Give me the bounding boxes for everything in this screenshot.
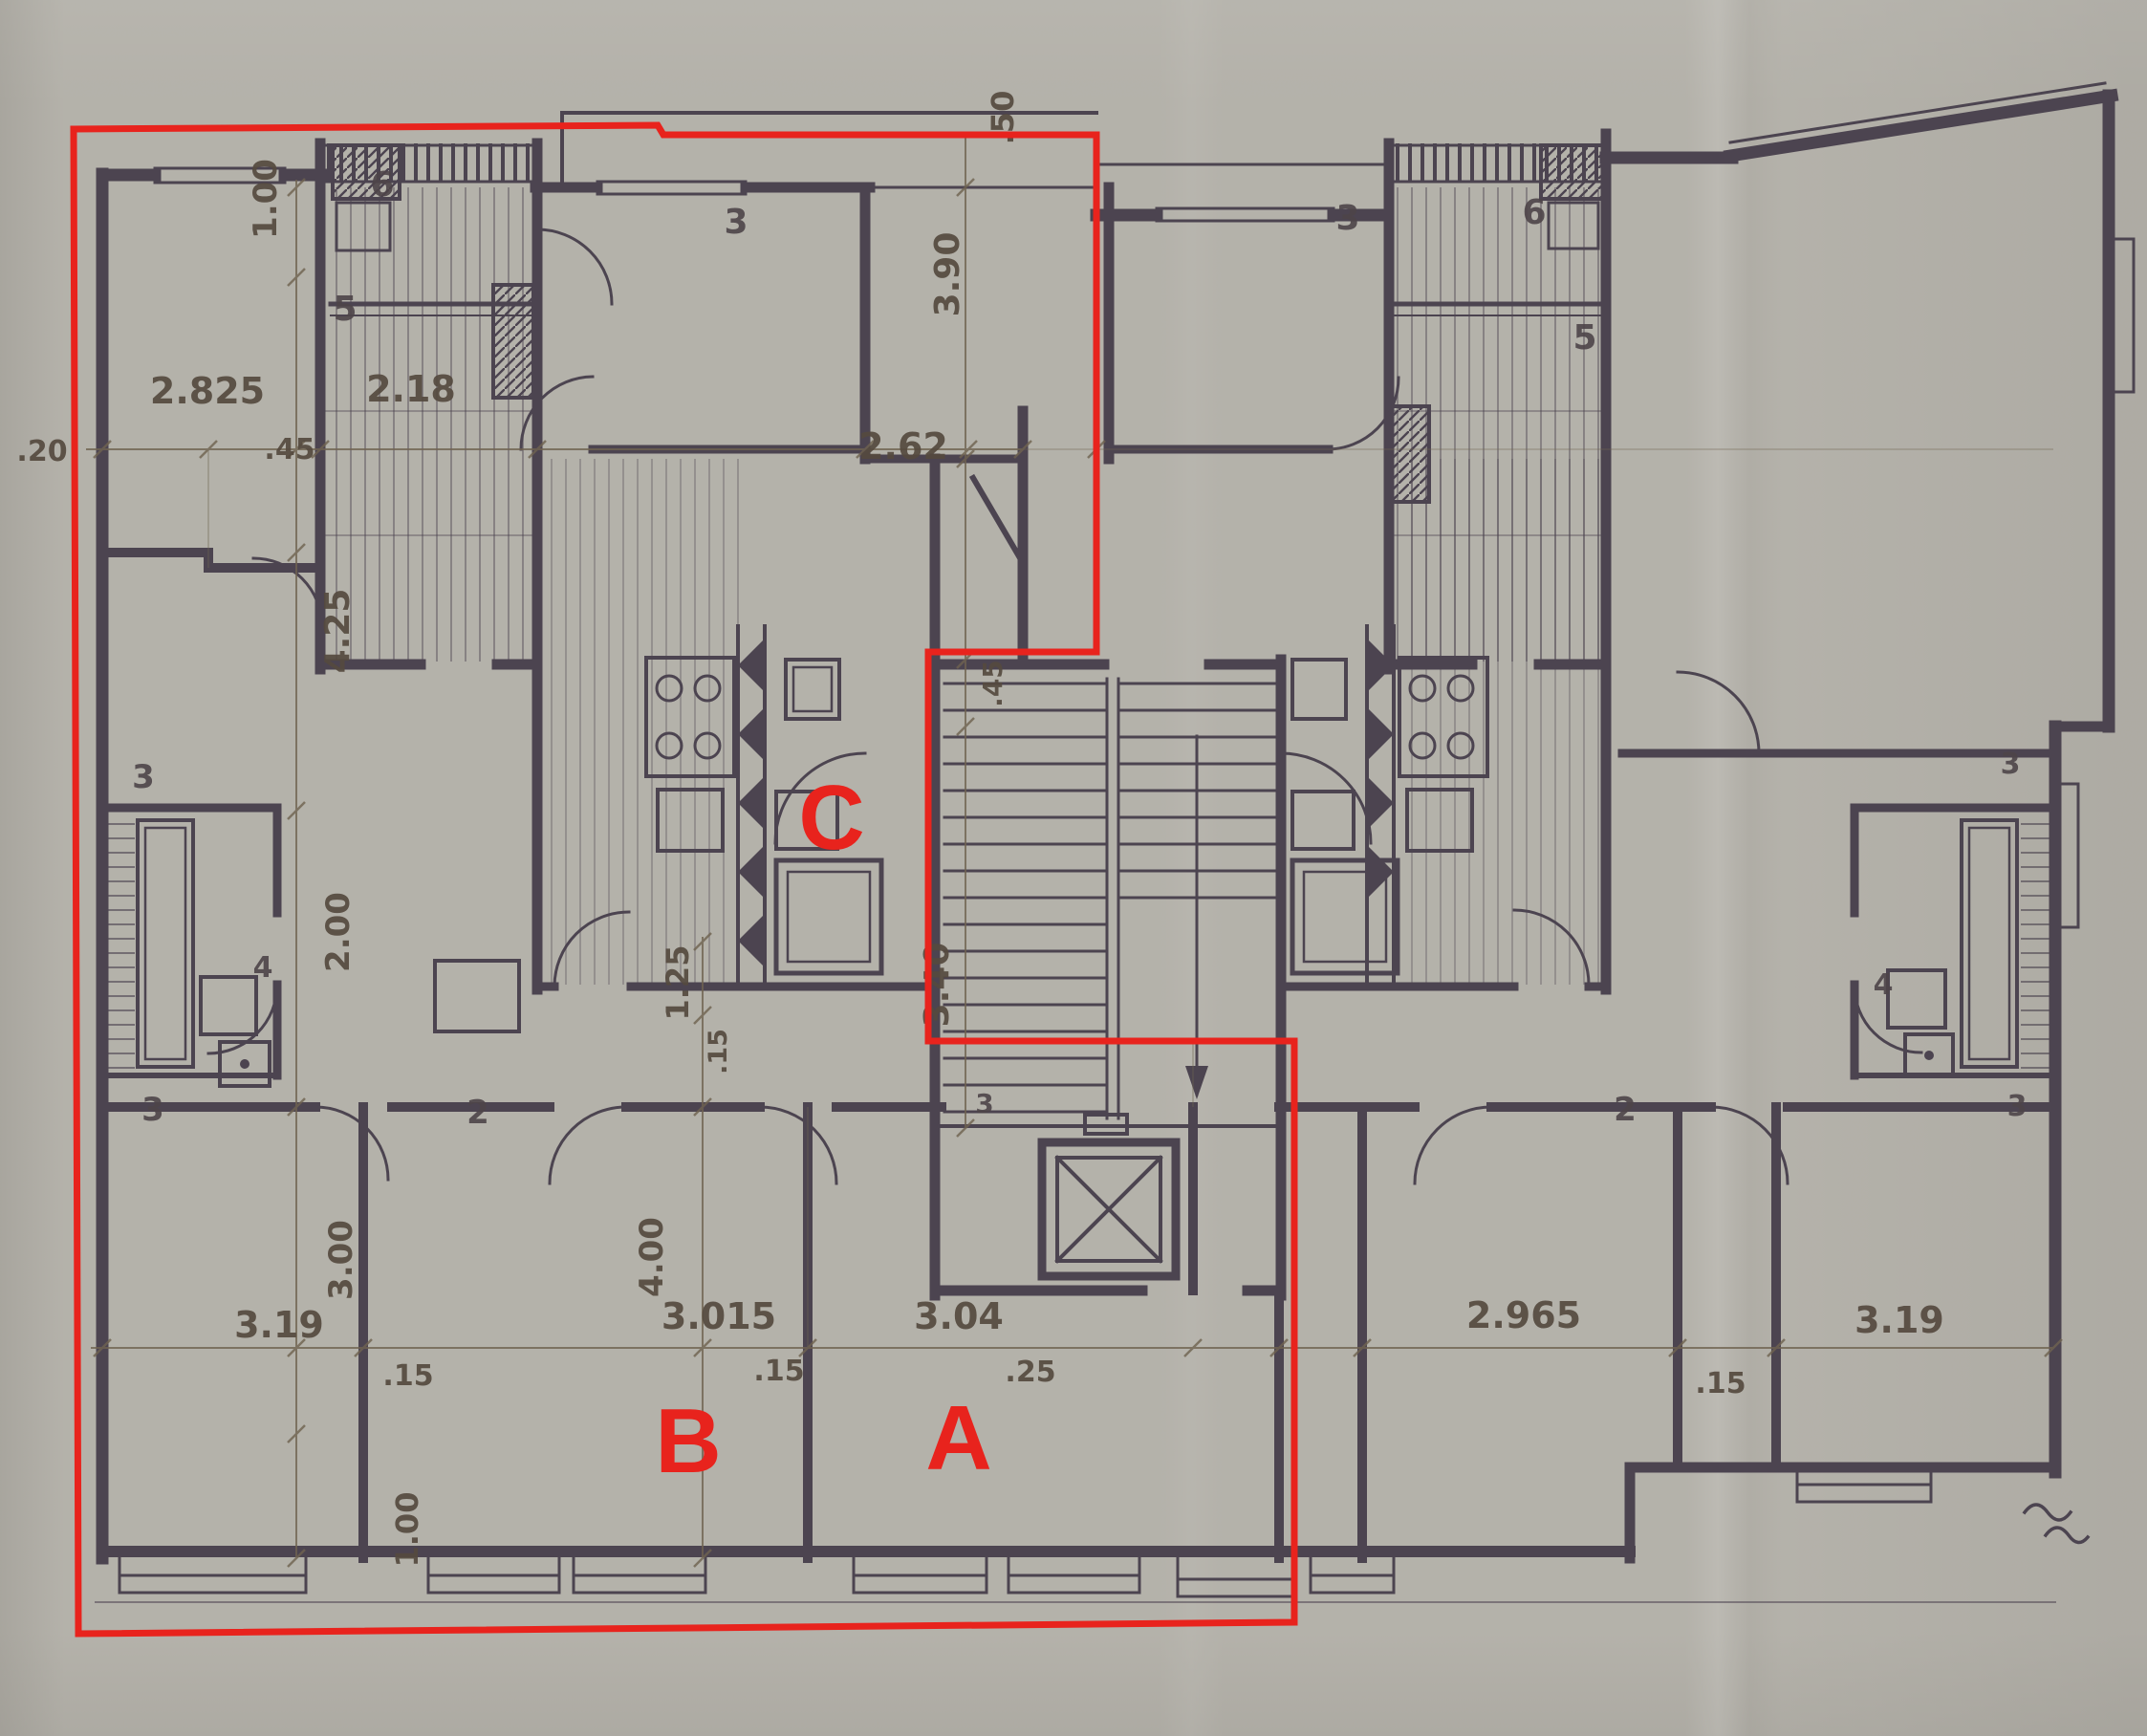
dimension-label-rotated: 4.25	[318, 589, 358, 674]
room-number: 4	[253, 951, 273, 985]
dimension-label: .20	[16, 435, 67, 468]
room-number: 6	[370, 165, 394, 205]
dimension-label: 2.965	[1466, 1294, 1581, 1336]
room-number: 3	[2007, 1090, 2028, 1123]
room-number: 5	[333, 290, 357, 329]
dimension-label: .15	[382, 1359, 433, 1393]
room-number: 3	[141, 1091, 164, 1129]
room-number: 4	[1874, 968, 1894, 1002]
dimension-label: 3.04	[914, 1295, 1004, 1337]
dimension-label-rotated: 3.00	[322, 1220, 360, 1300]
dimension-label: 2.825	[150, 370, 265, 412]
dimension-label-rotated: 1.25	[660, 945, 696, 1021]
room-number: 3	[132, 758, 155, 796]
dimension-label: .15	[753, 1355, 804, 1388]
dimension-label-rotated: 3.90	[928, 232, 967, 317]
room-number: 3	[1335, 199, 1359, 238]
dimension-label: .15	[1695, 1367, 1746, 1400]
dimension-label-rotated: 3.40	[918, 943, 957, 1028]
apartment-letter-C: C	[798, 767, 864, 869]
dimension-label-rotated: 4.00	[633, 1217, 671, 1297]
apartment-letter-B: B	[655, 1390, 721, 1492]
dimension-label-rotated: 2.00	[319, 892, 358, 972]
apartment-letter-A: A	[925, 1387, 991, 1489]
room-number: 6	[1522, 193, 1546, 232]
room-number: 5	[1572, 318, 1596, 358]
dimension-label: 3.015	[661, 1295, 776, 1337]
dimension-label: 2.18	[366, 368, 456, 410]
dimension-label-rotated: 1.00	[389, 1492, 425, 1568]
dimension-label: .25	[1005, 1356, 1055, 1389]
dimension-label: .45	[264, 433, 314, 467]
dimension-label-rotated: 1.00	[247, 159, 285, 239]
room-number: 3	[724, 203, 748, 242]
dimension-label: 3.19	[234, 1304, 324, 1346]
floor-plan-svg: 653343323652433 .202.8252.18.452.623.19.…	[0, 0, 2147, 1736]
dimension-label: 3.19	[1854, 1299, 1944, 1341]
room-number: 2	[1614, 1091, 1637, 1129]
dimension-label: 2.62	[858, 425, 948, 467]
room-number: 3	[2001, 748, 2021, 781]
dimension-label-rotated: .15	[704, 1029, 733, 1074]
room-number: 2	[466, 1094, 489, 1132]
room-number: 3	[975, 1088, 993, 1119]
scanned-floor-plan-photo: 653343323652433 .202.8252.18.452.623.19.…	[0, 0, 2147, 1736]
dimension-label-rotated: .45	[977, 660, 1008, 707]
